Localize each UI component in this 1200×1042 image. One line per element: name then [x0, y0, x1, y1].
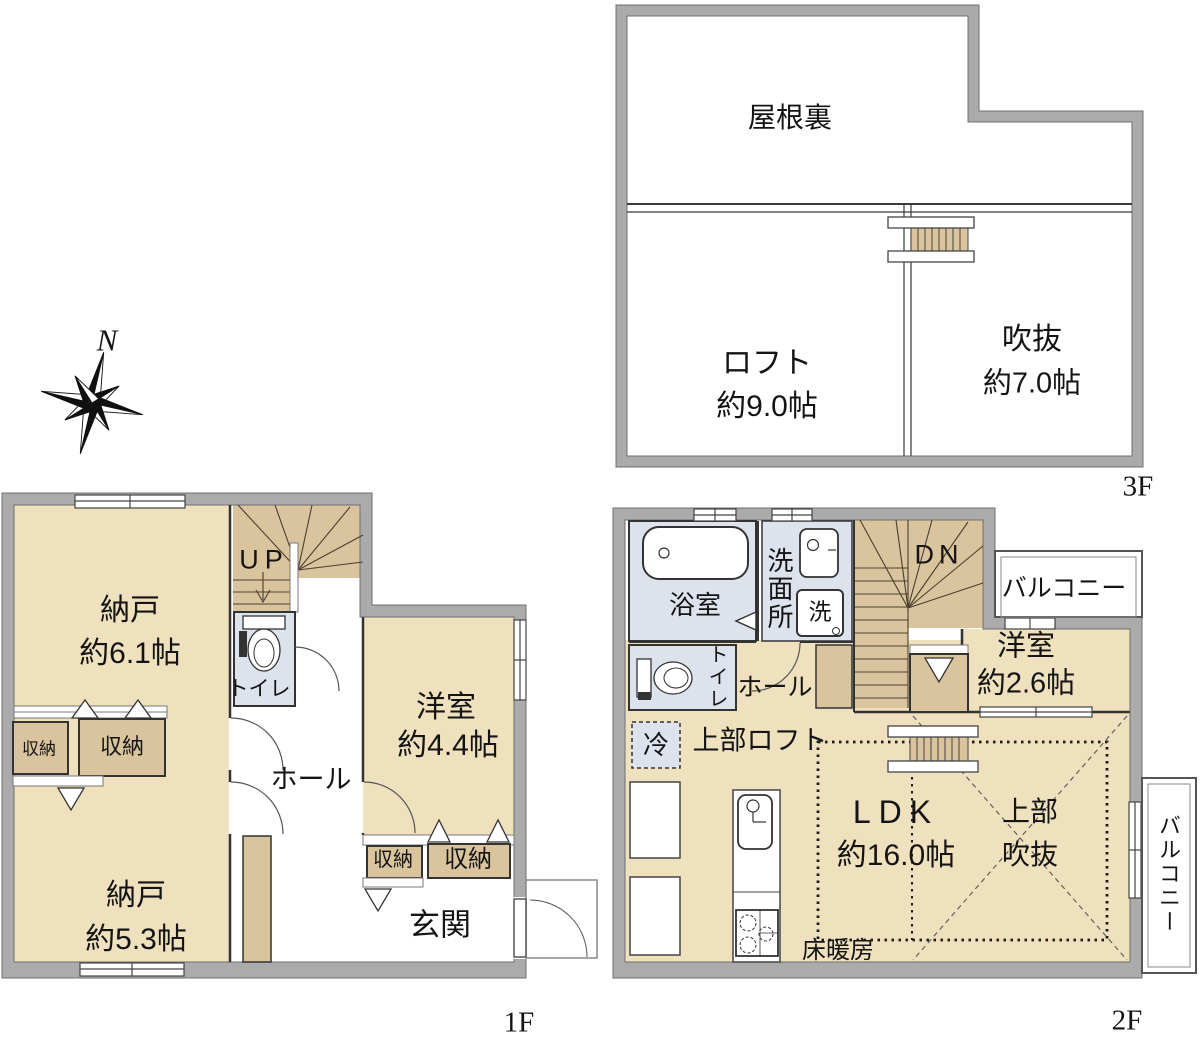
hall-cabinet	[816, 645, 852, 708]
floor-plan-page: 屋根裏 ロフト 約9.0帖 吹抜 約7.0帖 3F 納戸 約6.1帖 収納 収納…	[0, 0, 1200, 1042]
closet-label-small: 収納	[22, 741, 56, 758]
washer-label: 洗	[809, 601, 832, 624]
room-label-ldk: LDK	[853, 796, 939, 828]
balcony-label-top: バルコニー	[1002, 577, 1127, 602]
entrance-door	[513, 880, 597, 959]
upper-loft-label: 上部ロフト	[693, 728, 828, 755]
room-label-attic: 屋根裏	[748, 104, 832, 132]
stair-wall	[290, 543, 298, 612]
closet-label-a: 収納	[373, 850, 413, 870]
closet-label-b: 収納	[444, 848, 492, 872]
floor-label-1f: 1F	[504, 1009, 535, 1038]
room-label-bedroom-1f: 洋室	[416, 693, 476, 723]
room-size-bedroom-2f: 約2.6帖	[977, 670, 1075, 699]
floor-heating-label: 床暖房	[802, 939, 874, 963]
floor-label-2f: 2F	[1112, 1007, 1143, 1036]
floor-plan-drawing	[0, 0, 1200, 1042]
bedroom-26-closet	[910, 645, 968, 712]
closet-label-mid: 収納	[100, 736, 144, 758]
floor-label-3f: 3F	[1123, 473, 1154, 502]
sink-icon	[800, 529, 838, 577]
compass-rose-icon	[30, 341, 155, 466]
room-label-storage-b: 納戸	[106, 881, 166, 911]
room-label-storage-a: 納戸	[100, 596, 160, 626]
bathroom	[629, 521, 756, 641]
room-size-storage-a: 約6.1帖	[79, 639, 181, 669]
stairs-label-up: UP	[239, 547, 289, 574]
room-label-washroom: 洗面所	[766, 547, 792, 631]
room-label-void: 吹抜	[1002, 325, 1062, 355]
entrance-wall	[243, 836, 271, 962]
upper-void-label-1: 上部	[1002, 798, 1058, 826]
room-size-ldk: 約16.0帖	[837, 841, 955, 871]
room-label-loft: ロフト	[722, 349, 812, 379]
room-size-storage-b: 約5.3帖	[85, 925, 187, 955]
room-label-bedroom-2f: 洋室	[997, 633, 1055, 662]
upper-void-label-2: 吹抜	[1002, 841, 1058, 869]
stairs-label-dn: DN	[915, 542, 964, 569]
kitchen-unit-a	[630, 782, 680, 858]
stove-icon	[736, 910, 778, 956]
room-label-bath: 浴室	[669, 592, 721, 618]
kitchen-counter	[733, 790, 780, 962]
bedroom-44-floor	[363, 617, 514, 835]
room-size-bedroom-1f: 約4.4帖	[397, 731, 499, 761]
balcony-label-side: バルコニー	[1157, 814, 1179, 934]
room-label-hall-2f: ホール	[737, 676, 812, 701]
loft-ladder-3f	[888, 217, 974, 262]
room-size-loft: 約9.0帖	[716, 392, 818, 422]
fridge-label: 冷	[643, 732, 669, 758]
room-label-toilet-1f: トイレ	[228, 679, 291, 700]
plan-1f	[2, 493, 597, 978]
kitchen-sink-icon	[738, 795, 772, 849]
kitchen-unit-b	[630, 877, 680, 955]
room-size-void: 約7.0帖	[983, 370, 1081, 399]
compass-north-label: N	[97, 325, 118, 356]
room-label-hall-1f: ホール	[271, 767, 352, 794]
room-label-toilet-2f: トイレ	[706, 644, 726, 710]
room-label-entrance: 玄関	[409, 910, 471, 941]
